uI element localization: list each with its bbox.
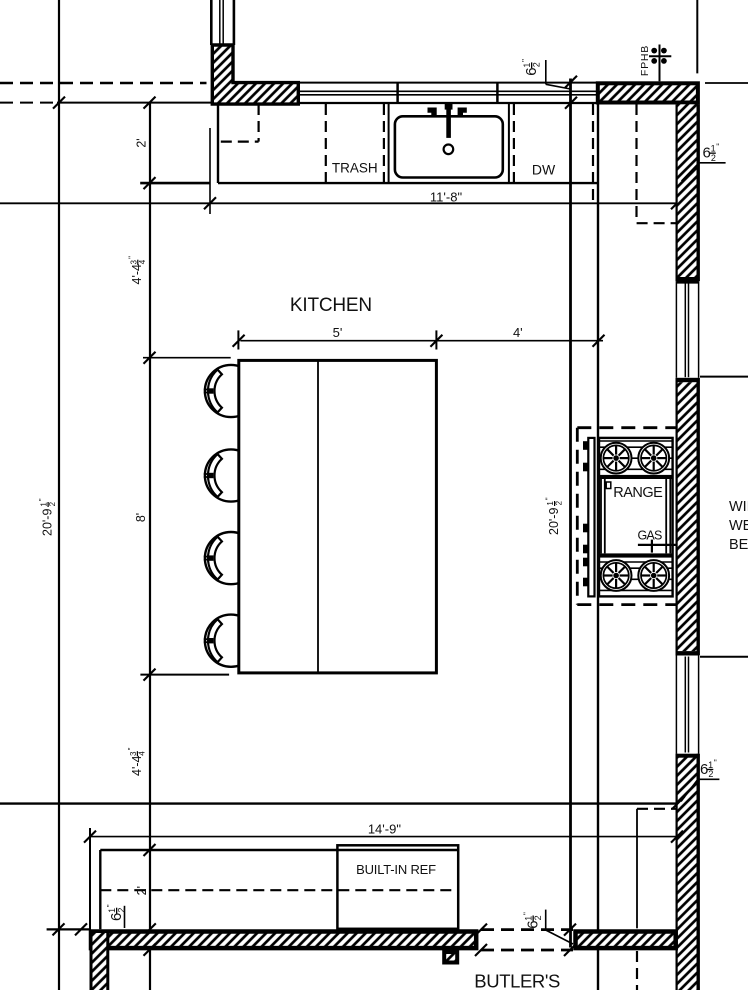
svg-text:FPHB: FPHB — [639, 45, 651, 76]
svg-text:TRASH: TRASH — [332, 160, 378, 175]
svg-text:BUILT-IN REF: BUILT-IN REF — [356, 862, 436, 877]
svg-text:WELL: WELL — [729, 518, 748, 534]
svg-text:4': 4' — [513, 325, 523, 340]
svg-text:2': 2' — [135, 138, 149, 147]
svg-text:5': 5' — [333, 325, 343, 340]
svg-text:8': 8' — [134, 513, 148, 522]
svg-text:GAS: GAS — [638, 529, 662, 543]
svg-text:RANGE: RANGE — [613, 485, 663, 501]
svg-text:2': 2' — [135, 886, 149, 895]
svg-text:DW: DW — [532, 162, 556, 178]
svg-text:BELOW: BELOW — [729, 537, 748, 553]
svg-text:WINDOW: WINDOW — [729, 499, 748, 515]
svg-text:BUTLER'S: BUTLER'S — [474, 970, 560, 990]
svg-text:11'-8": 11'-8" — [430, 190, 463, 205]
svg-text:KITCHEN: KITCHEN — [290, 295, 372, 316]
svg-text:14'-9": 14'-9" — [368, 822, 402, 837]
